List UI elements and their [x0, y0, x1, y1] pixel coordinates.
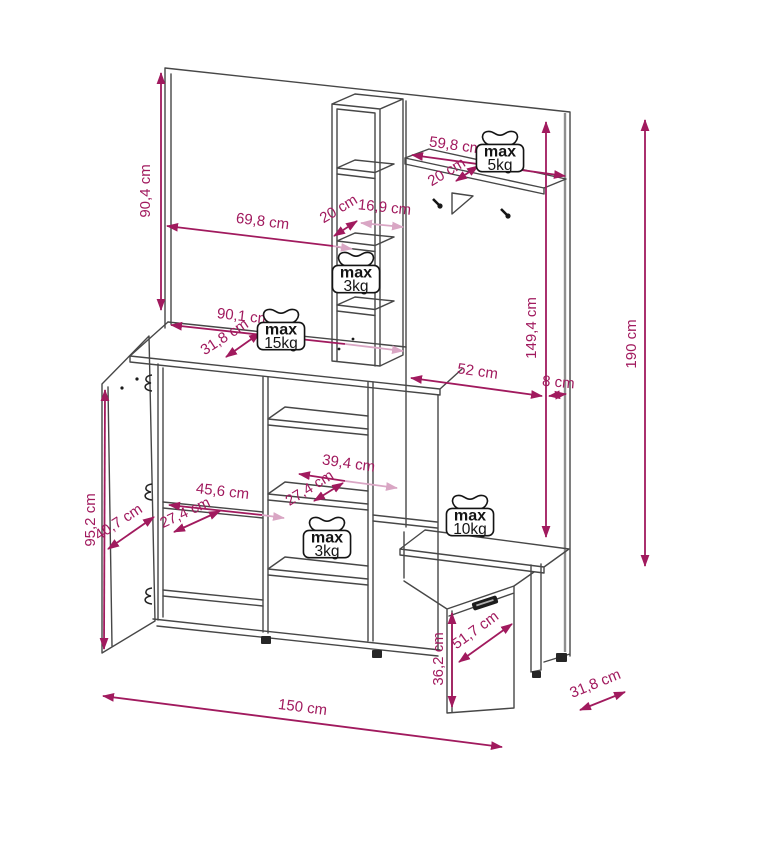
shelf-pin-hole: [338, 348, 341, 351]
weight-max-3kg-mid-icon: max 3kg: [303, 517, 350, 560]
door-hinge-icon: [145, 375, 152, 391]
diagram-canvas: 90,4 cm 69,8 cm 20 cm 16,9 cm 59,8 cm 20…: [0, 0, 764, 867]
weight-value: 5kg: [488, 157, 513, 174]
door-hinge-icon: [145, 484, 152, 500]
dim-mirror-height: 90,4 cm: [137, 73, 161, 310]
dim-bench-flap-height: 36,2 cm: [430, 613, 452, 707]
shelf-pin-hole: [352, 338, 355, 341]
dim-total-height: 190 cm: [623, 120, 645, 566]
weight-value: 10kg: [453, 521, 487, 538]
dim-label: 69,8 cm: [235, 210, 290, 233]
dim-label: 59,8 cm: [428, 133, 483, 157]
dim-label: 20 cm: [317, 191, 361, 227]
coat-hook-icon: [433, 199, 443, 209]
weight-value: 3kg: [344, 278, 369, 295]
dim-label: 40,7 cm: [92, 501, 146, 544]
flap-handle: [471, 595, 498, 611]
dim-label: 150 cm: [277, 696, 328, 719]
weight-value: 15kg: [264, 335, 298, 352]
dim-bench-flap-width: 51,7 cm: [449, 608, 512, 662]
dim-total-depth: 31,8 cm: [567, 666, 625, 710]
weight-max-10kg-icon: max 10kg: [446, 495, 493, 538]
door-dowel-hole: [120, 386, 123, 389]
dim-panel-width: 52 cm: [411, 360, 542, 396]
dim-label: 90,4 cm: [137, 164, 154, 217]
dimension-annotations: 90,4 cm 69,8 cm 20 cm 16,9 cm 59,8 cm 20…: [82, 73, 645, 747]
dim-top-shelf-depth: 20 cm: [425, 154, 478, 190]
dim-label: 190 cm: [623, 319, 640, 368]
dim-column-depth: 20 cm: [317, 191, 361, 236]
dim-door-width: 40,7 cm: [92, 501, 154, 549]
door-hinge-icon: [145, 588, 152, 604]
dim-label: 27,4 cm: [282, 467, 336, 510]
dim-label: 51,7 cm: [449, 608, 502, 653]
dim-label: 149,4 cm: [523, 297, 540, 359]
dim-label: 8 cm: [541, 373, 575, 393]
dim-label: 36,2 cm: [430, 632, 447, 685]
weight-max-15kg-icon: max 15kg: [257, 309, 304, 352]
dim-label: 52 cm: [456, 360, 499, 383]
dim-mid-shelf-depth: 27,4 cm: [282, 467, 343, 510]
door-dowel-hole: [135, 377, 138, 380]
weight-max-5kg-icon: max 5kg: [476, 131, 523, 174]
furniture-dimension-diagram: 90,4 cm 69,8 cm 20 cm 16,9 cm 59,8 cm 20…: [0, 0, 764, 867]
weight-max-3kg-icon: max 3kg: [332, 252, 379, 295]
coat-hook-icon: [501, 209, 511, 219]
dim-total-width: 150 cm: [103, 696, 502, 747]
weight-value: 3kg: [315, 543, 340, 560]
